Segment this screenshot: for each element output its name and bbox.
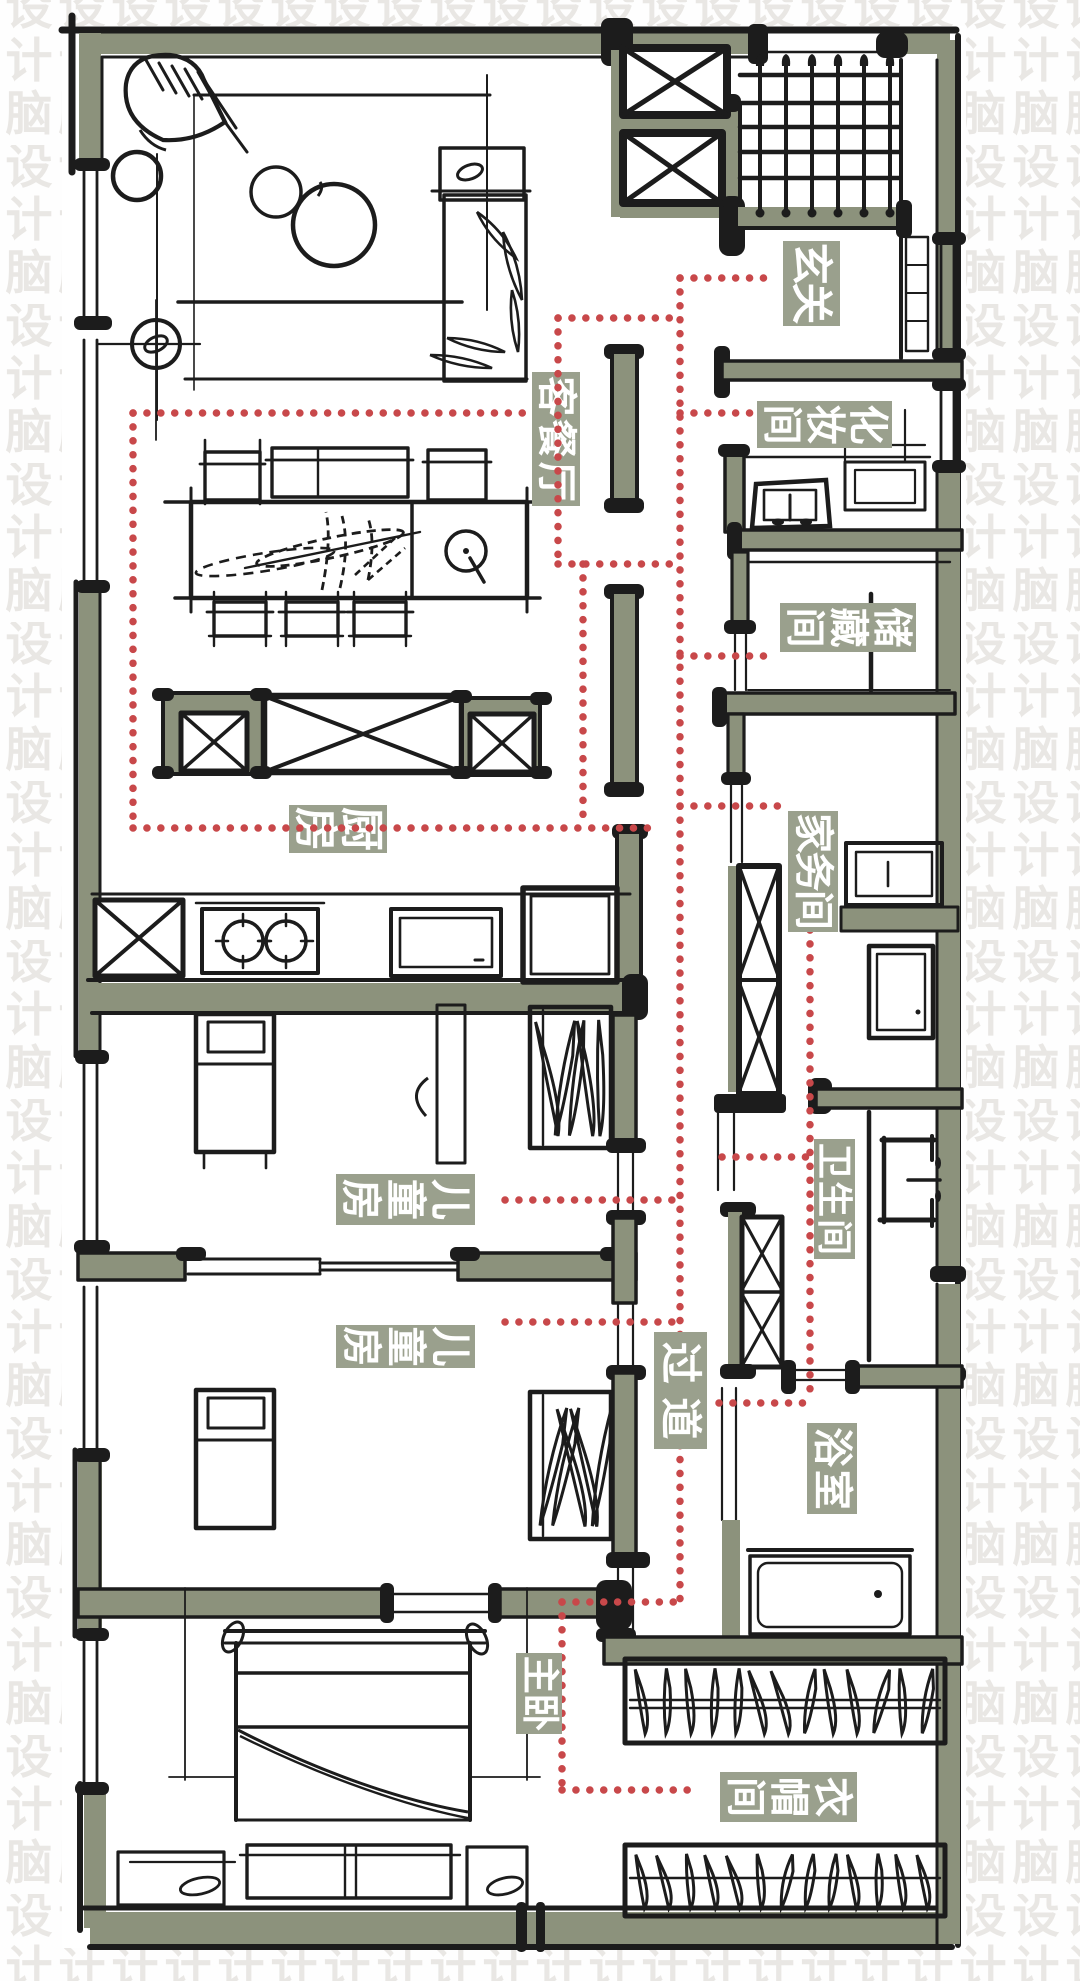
svg-text:室: 室 [810, 1470, 854, 1510]
svg-text:间: 间 [791, 890, 835, 930]
svg-text:玄: 玄 [788, 243, 835, 285]
svg-text:主: 主 [518, 1656, 560, 1694]
svg-text:卧: 卧 [518, 1693, 560, 1731]
svg-text:餐: 餐 [534, 419, 578, 459]
svg-text:务: 务 [791, 852, 835, 892]
svg-text:关: 关 [788, 282, 835, 324]
svg-text:儿: 儿 [428, 1327, 472, 1367]
svg-text:间: 间 [723, 1777, 767, 1817]
svg-text:浴: 浴 [810, 1427, 854, 1468]
svg-text:房: 房 [339, 1327, 383, 1367]
svg-text:衣: 衣 [810, 1777, 854, 1817]
svg-text:客: 客 [534, 376, 578, 416]
svg-text:藏: 藏 [826, 608, 870, 648]
svg-text:帽: 帽 [767, 1777, 811, 1817]
svg-text:房: 房 [338, 1179, 384, 1220]
svg-text:过: 过 [657, 1342, 704, 1384]
svg-text:卫: 卫 [814, 1143, 855, 1179]
svg-text:储: 储 [869, 608, 913, 648]
svg-text:儿: 儿 [427, 1179, 473, 1220]
svg-text:生: 生 [814, 1181, 855, 1217]
svg-text:妆: 妆 [803, 405, 847, 445]
svg-text:间: 间 [783, 608, 827, 648]
svg-text:道: 道 [657, 1397, 704, 1439]
svg-text:间: 间 [760, 405, 804, 445]
svg-text:化: 化 [846, 405, 890, 445]
svg-text:童: 童 [384, 1327, 429, 1367]
svg-text:家: 家 [791, 813, 835, 853]
svg-text:童: 童 [383, 1179, 429, 1220]
svg-text:间: 间 [814, 1219, 855, 1255]
